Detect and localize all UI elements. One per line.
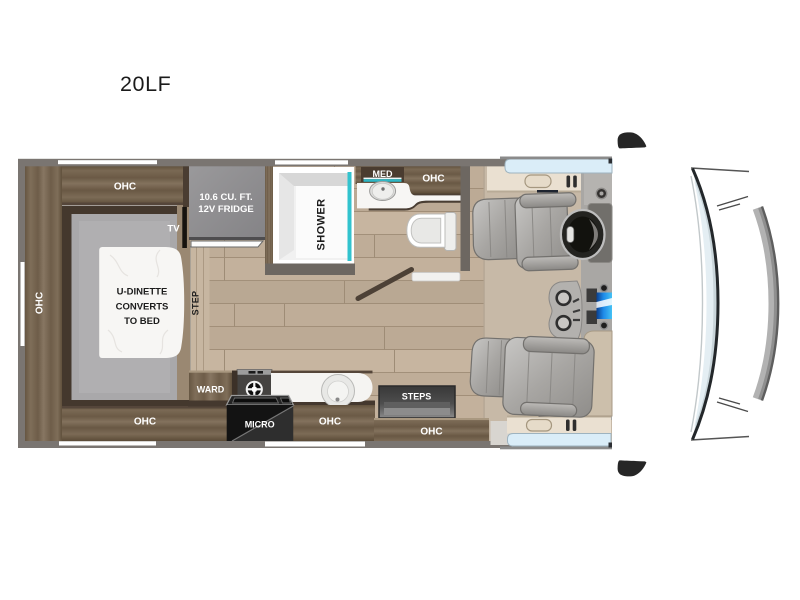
svg-text:U-DINETTE: U-DINETTE	[117, 287, 168, 298]
svg-text:OHC: OHC	[114, 182, 136, 193]
svg-text:12V FRIDGE: 12V FRIDGE	[198, 204, 253, 215]
svg-text:OHC: OHC	[134, 417, 156, 428]
svg-text:CONVERTS: CONVERTS	[116, 302, 169, 313]
svg-text:STEP: STEP	[191, 291, 201, 316]
svg-text:WARD: WARD	[197, 385, 225, 395]
svg-text:OHC: OHC	[319, 417, 341, 428]
svg-text:OHC: OHC	[35, 292, 46, 314]
svg-text:TV: TV	[167, 224, 180, 235]
svg-text:OHC: OHC	[422, 174, 444, 185]
svg-text:SHOWER: SHOWER	[316, 199, 328, 251]
svg-text:OHC: OHC	[420, 427, 442, 438]
svg-text:10.6 CU. FT.: 10.6 CU. FT.	[199, 192, 252, 203]
svg-text:MED: MED	[373, 169, 394, 179]
svg-text:20LF: 20LF	[120, 72, 171, 96]
svg-text:TO BED: TO BED	[124, 316, 160, 327]
svg-text:MICRO: MICRO	[245, 420, 275, 430]
svg-text:STEPS: STEPS	[402, 392, 432, 402]
